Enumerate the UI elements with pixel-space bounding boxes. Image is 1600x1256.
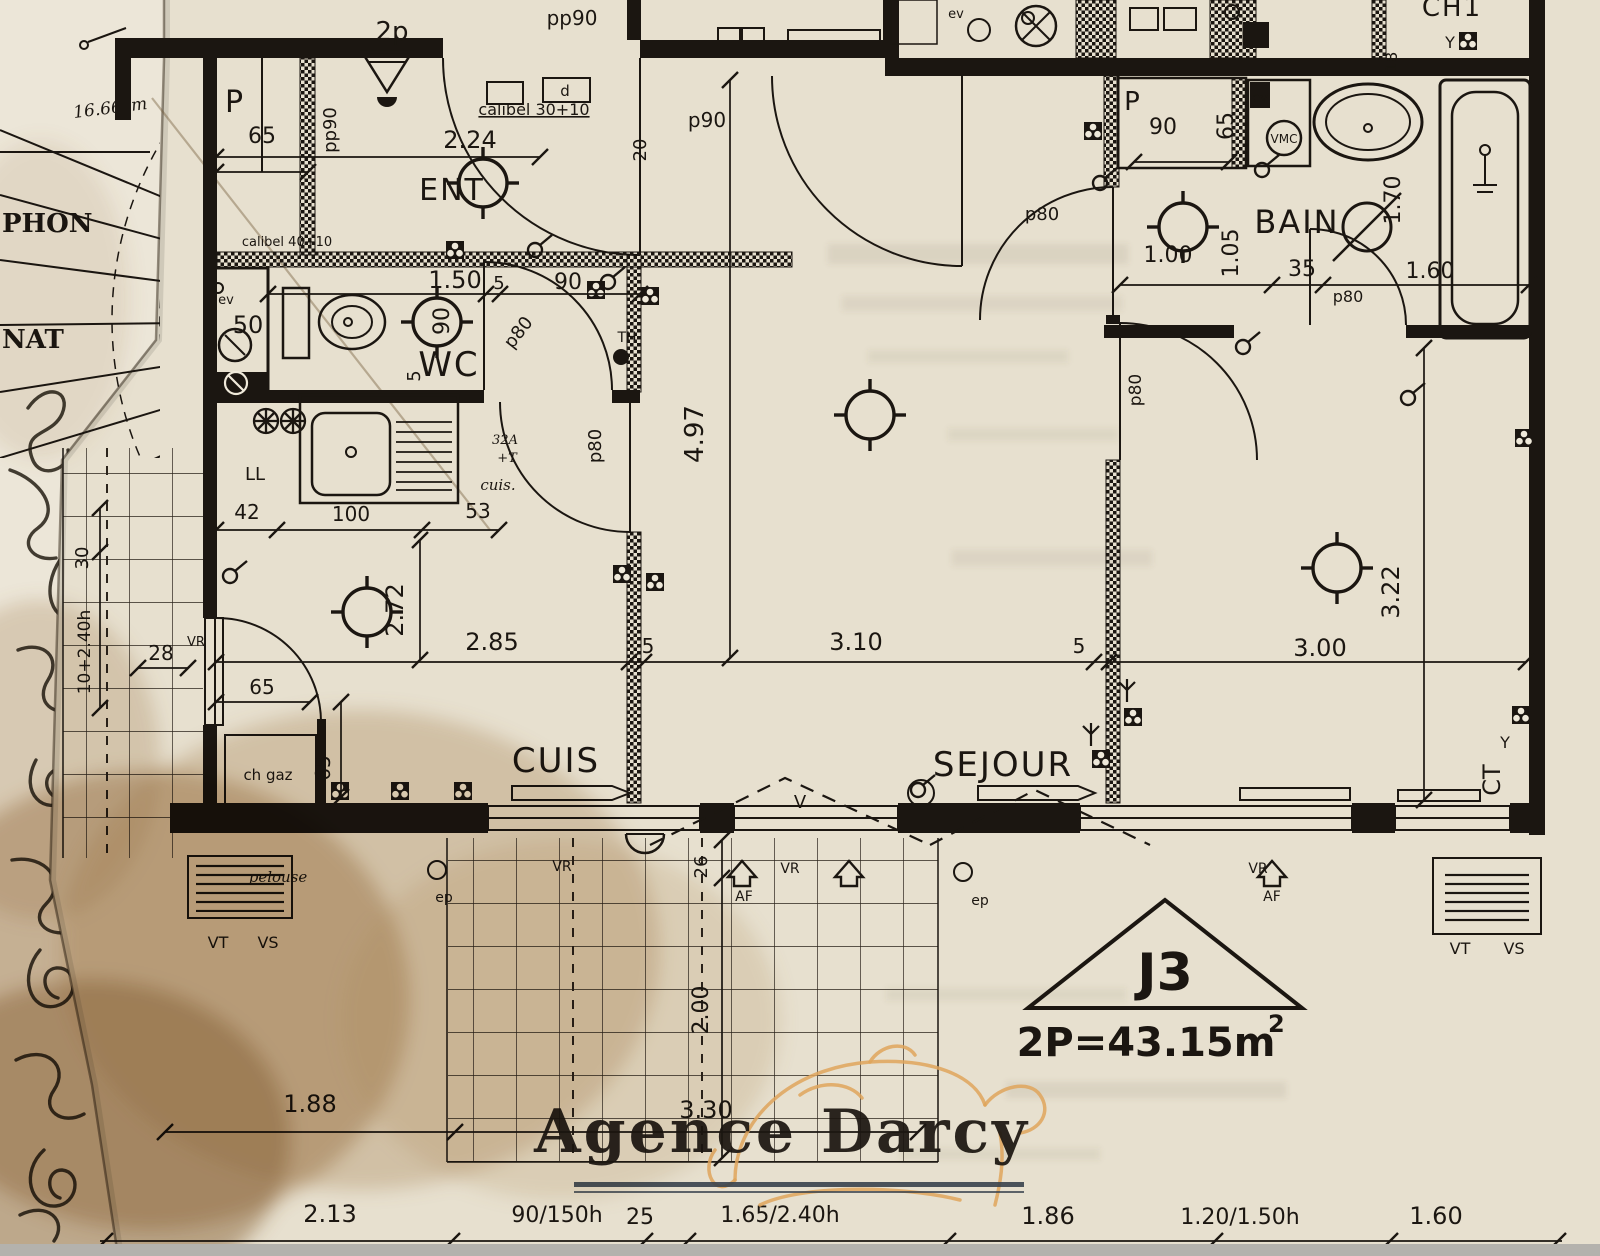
dim-90-wc-v: 90 [430,307,455,335]
label-vr-sejour: VR [1248,861,1268,877]
dim-5-wc-v: 5 [404,370,425,381]
dim-1-60: 1.60 [1409,1202,1462,1230]
gas-burner-icon [281,409,305,433]
label-p80-bain: p80 [1333,287,1364,306]
label-vr-balcony: VR [187,635,205,650]
label-ev-kitchen: ev [948,7,964,22]
thermostat-dot [613,349,629,365]
vent-icon [646,573,664,591]
label-2p: 2p [375,17,408,47]
label-ct: CT [1478,764,1506,796]
dim-26: 26 [691,856,712,879]
label-y-right: Y [1499,733,1510,752]
vent-icon [1084,122,1102,140]
dim-18: 18 [1382,52,1401,72]
room-label-bain: BAIN [1254,203,1339,241]
note-32a: 32A [492,433,518,448]
unit-area: 2P=43.15m [1017,1020,1276,1066]
dim-1-00: 1.00 [1144,243,1193,268]
vent-shaft-right [1433,858,1541,934]
label-p80-chambre: p80 [1126,374,1146,406]
dim-20: 20 [630,139,651,162]
dim-1-50: 1.50 [428,266,481,294]
vent-icon [1124,708,1142,726]
dim-1-70: 1.70 [1381,176,1406,225]
dim-4-97: 4.97 [680,405,710,463]
vent-icon [613,565,631,583]
vent-icon [1092,750,1110,768]
label-calibel-30: calibel 30+10 [478,100,589,119]
unit-area-exponent: 2 [1268,1010,1285,1038]
label-vs-right: VS [1503,939,1524,958]
dim-3-00: 3.00 [1293,634,1346,662]
closet-label-p: P [225,85,243,120]
dim-90-wc: 90 [554,270,582,295]
label-y-top: Y [1444,33,1455,52]
note-cuis: cuis. [480,476,515,494]
label-p90: p90 [688,108,726,132]
dim-120-150h: 1.20/1.50h [1180,1205,1299,1230]
dim-28: 28 [148,641,173,665]
dim-35: 35 [1288,257,1316,282]
unit-id: J3 [1134,943,1193,1003]
dim-65-closet: 65 [248,124,276,149]
room-label-ent: ENT [419,173,485,208]
dim-42: 42 [234,500,259,524]
dim-2-24: 2.24 [443,126,496,154]
floor-plan-svg: PHON NAT 16.66cm [0,0,1600,1256]
dim-25: 25 [626,1205,654,1230]
dim-1-60-bain: 1.60 [1406,259,1455,284]
label-ev-bain: ev [1252,91,1268,106]
dim-100: 100 [332,502,370,526]
label-ep-2: ep [971,893,989,909]
dim-2-85: 2.85 [465,628,518,656]
dim-3-10: 3.10 [829,628,882,656]
dim-2-13: 2.13 [303,1200,356,1228]
label-pp90-top: pp90 [547,6,598,30]
dim-90-150h: 90/150h [511,1203,602,1228]
dim-5-a: 5 [642,634,655,658]
label-ll: LL [245,464,265,485]
label-d: d [560,82,570,100]
photo-edge-band [0,1244,1600,1256]
dim-30: 30 [72,547,93,570]
note-plus-t: +T [497,451,518,466]
label-vmc: VMC [1271,132,1298,146]
dim-2-72: 2.72 [381,583,409,636]
label-calibel-40: calibel 40+10 [242,235,332,250]
closet-label-p2: P [1124,87,1140,117]
dim-50: 50 [233,311,264,339]
label-ev-wc: ev [218,293,234,308]
label-v: V [794,792,807,813]
dim-3-22: 3.22 [1377,565,1405,618]
vent-icon [446,241,464,259]
vent-icon [1459,32,1477,50]
room-label-wc: WC [418,345,479,385]
dim-65-closet2: 65 [1214,112,1239,140]
gas-burner-icon [254,409,278,433]
dim-65-balcony: 65 [249,675,274,699]
room-label-ch1: CH1 [1422,0,1482,23]
vent-icon [1515,429,1533,447]
dim-165-240h: 1.65/2.40h [720,1203,839,1228]
dim-1-86: 1.86 [1021,1202,1074,1230]
floor-plan-photo: PHON NAT 16.66cm [0,0,1600,1256]
label-af-1: AF [735,889,753,905]
label-vt-right: VT [1450,939,1471,958]
dim-53: 53 [465,499,490,523]
dim-5-b: 5 [1073,634,1086,658]
label-pp90-side: pp90 [320,107,341,153]
label-p80-hall: p80 [1025,204,1059,225]
label-p80-cuisine: p80 [585,429,606,463]
label-th: TH [616,330,636,346]
label-vr-middle: VR [780,861,800,877]
vent-icon [587,281,605,299]
vent-icon [1512,706,1530,724]
room-label-sejour: SEJOUR [933,745,1073,785]
dim-1-05: 1.05 [1219,229,1244,278]
dim-5-wc: 5 [493,273,504,294]
label-af-2: AF [1263,889,1281,905]
dim-90-closet2: 90 [1149,115,1177,140]
